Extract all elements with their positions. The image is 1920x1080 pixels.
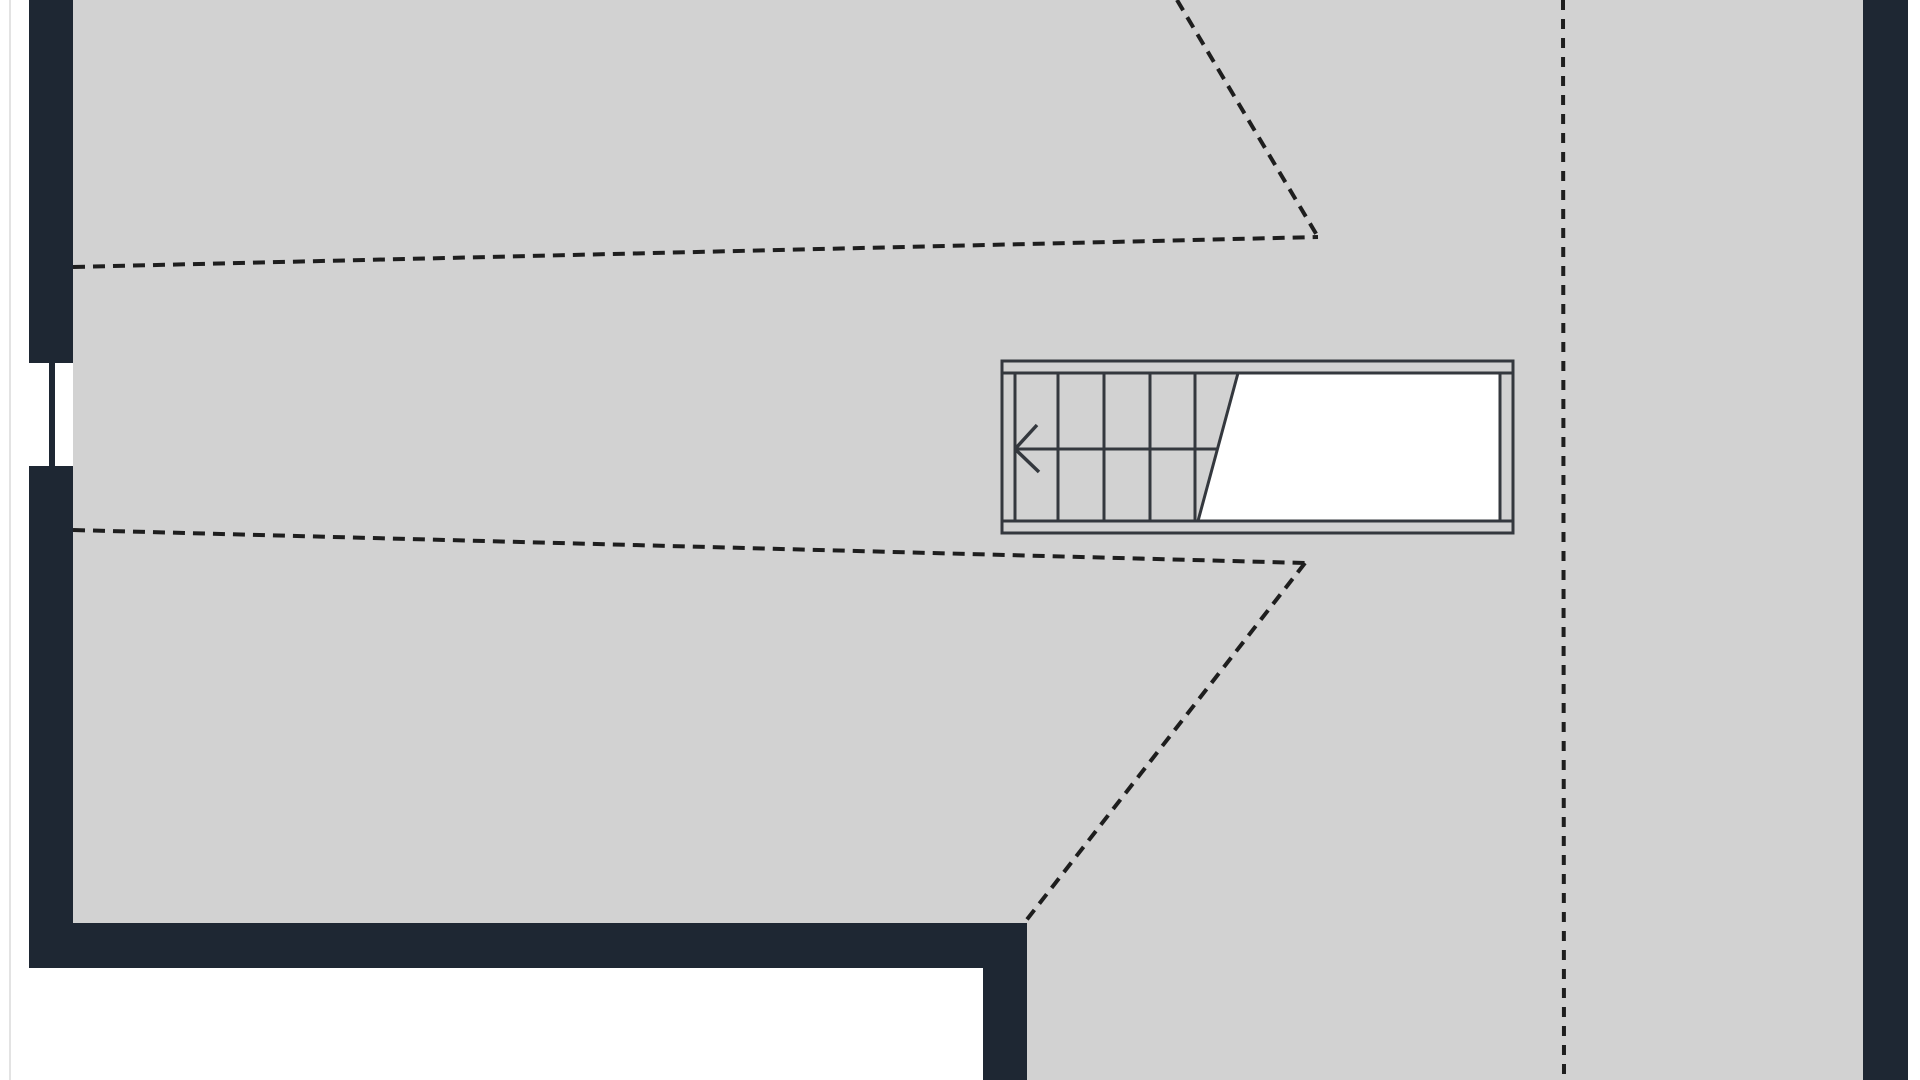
left-wall-window bbox=[29, 363, 73, 466]
stairwell-void bbox=[1198, 373, 1500, 521]
floor-area bbox=[73, 0, 1863, 925]
floor-plan-page bbox=[0, 0, 1920, 1080]
staircase bbox=[1002, 361, 1513, 533]
window-mullion bbox=[49, 363, 55, 466]
left-exterior-wall bbox=[29, 0, 73, 968]
right-exterior-wall bbox=[1863, 0, 1908, 1080]
floor-areas bbox=[73, 0, 1863, 1080]
floor-area bbox=[1027, 925, 1863, 1080]
attic-floor-plan-drawing bbox=[0, 0, 1920, 1080]
bottom-wall-return-stub bbox=[983, 923, 1027, 1080]
bottom-interior-wall bbox=[29, 923, 1027, 968]
